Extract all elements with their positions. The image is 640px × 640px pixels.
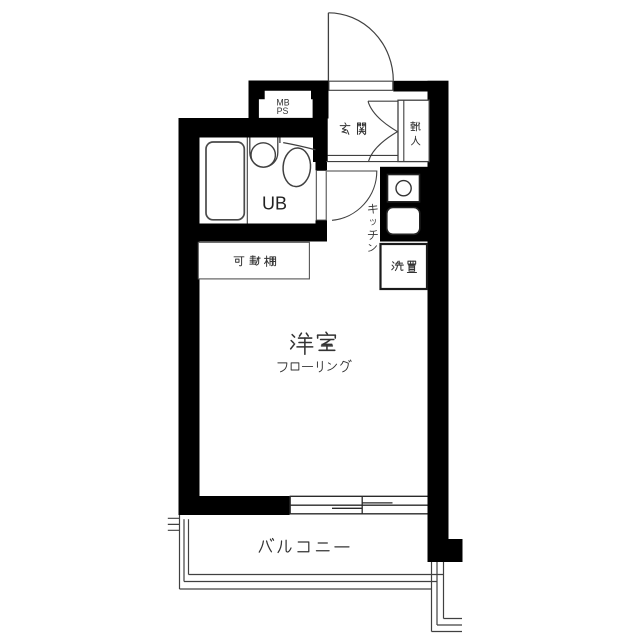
svg-text:PS: PS	[277, 106, 289, 116]
svg-text:UB: UB	[262, 194, 287, 214]
